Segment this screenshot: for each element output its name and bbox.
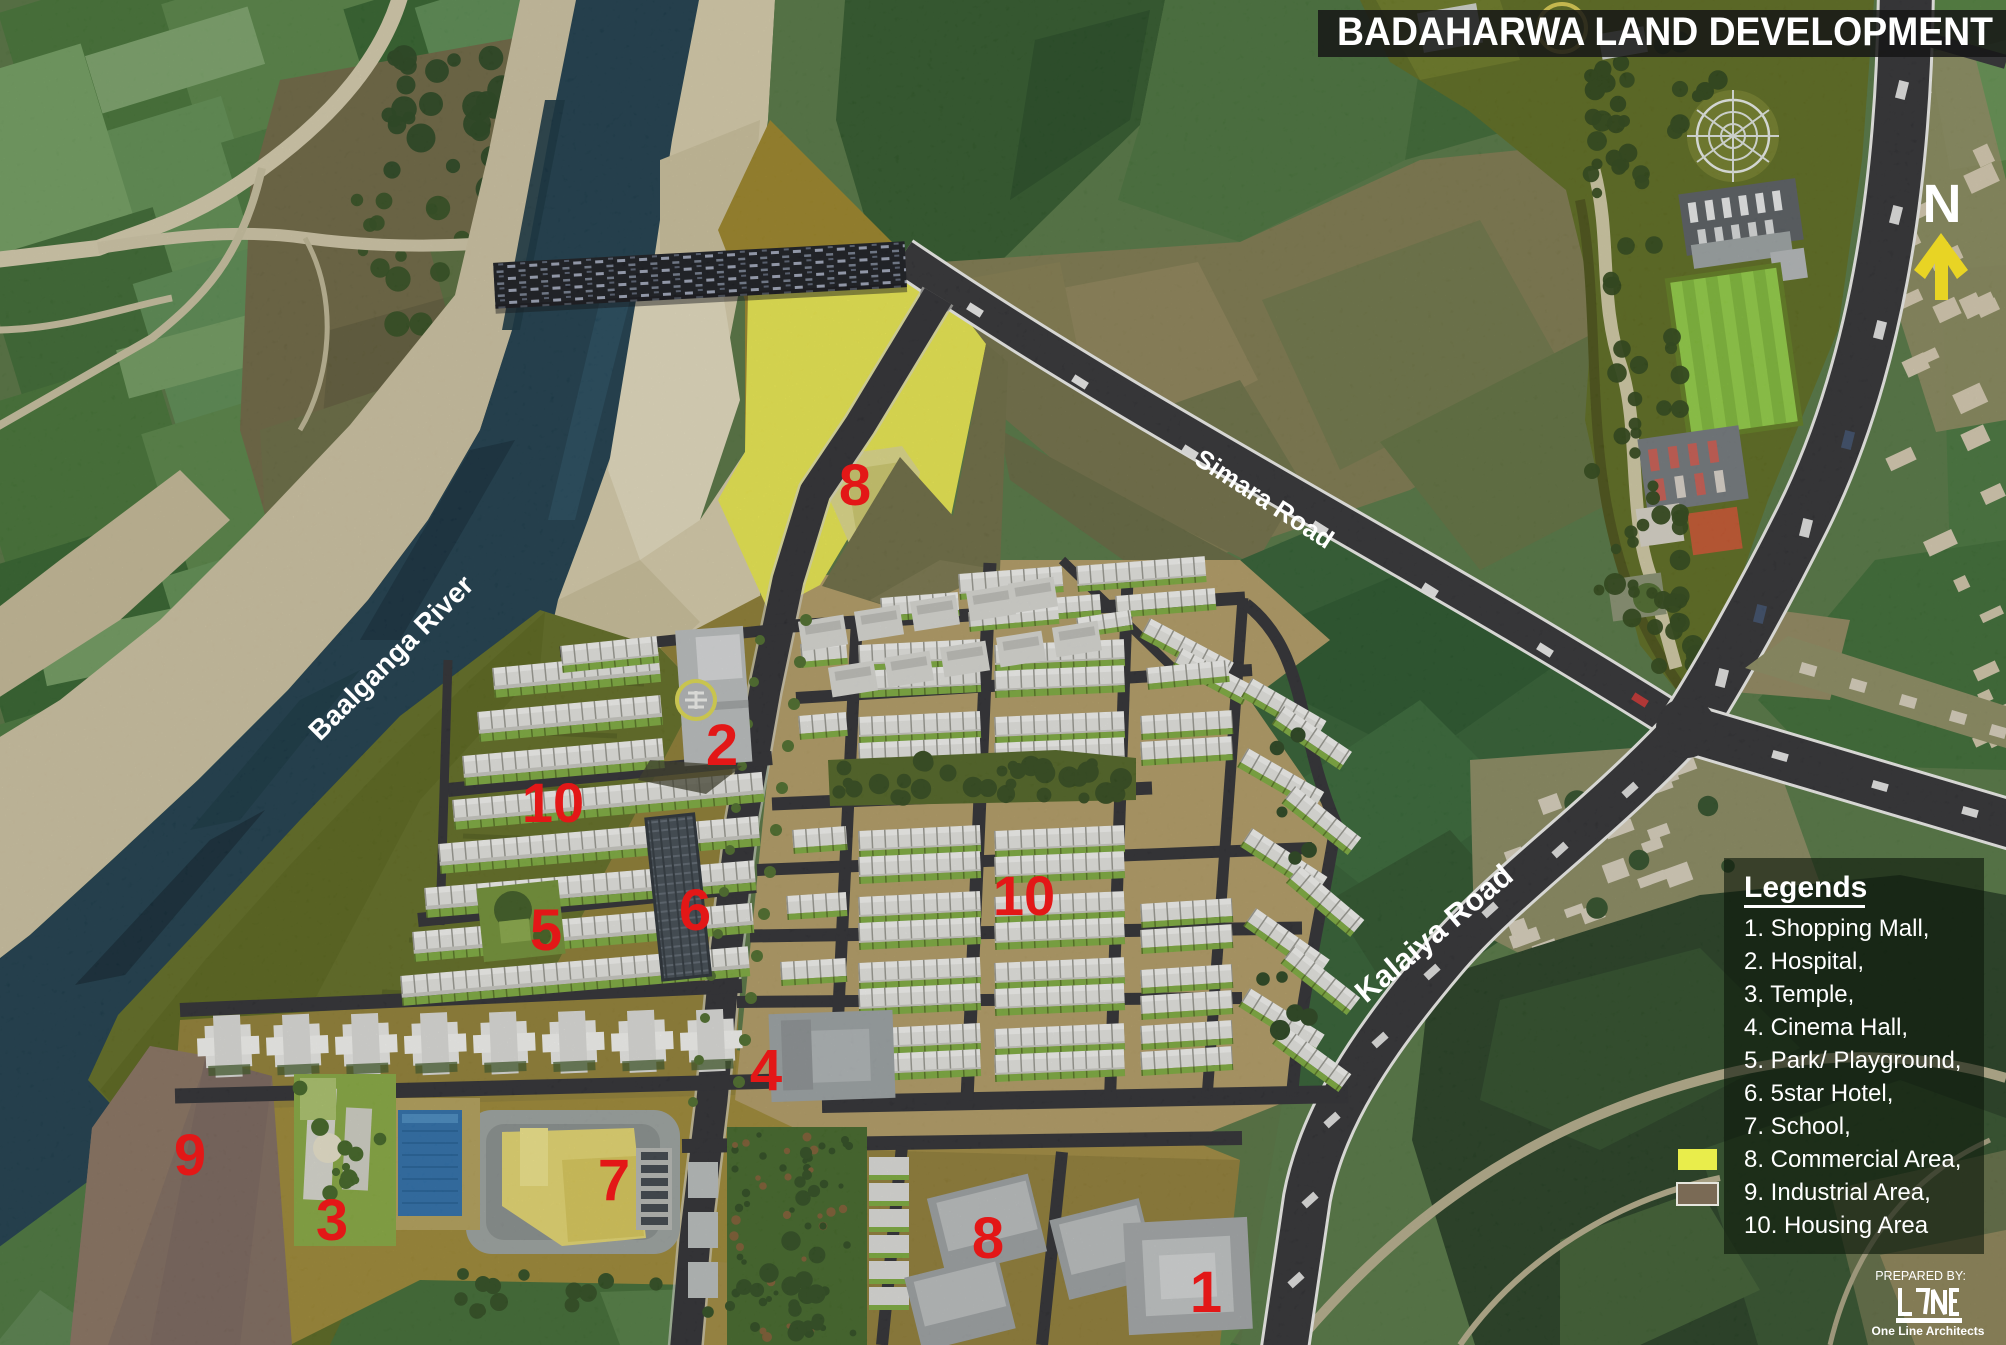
svg-text:10: 10: [522, 771, 584, 834]
svg-text:6. 5star Hotel,: 6. 5star Hotel,: [1744, 1080, 1893, 1107]
svg-text:One Line Architects: One Line Architects: [1872, 1324, 1985, 1338]
svg-text:10: 10: [993, 864, 1055, 927]
svg-text:7: 7: [598, 1148, 630, 1213]
svg-text:1: 1: [1190, 1260, 1222, 1325]
svg-text:3: 3: [316, 1188, 348, 1253]
svg-text:8: 8: [972, 1206, 1004, 1271]
svg-text:6: 6: [679, 878, 711, 943]
svg-text:9: 9: [174, 1123, 206, 1188]
svg-text:7. School,: 7. School,: [1744, 1113, 1851, 1140]
svg-text:2. Hospital,: 2. Hospital,: [1744, 948, 1864, 975]
svg-text:BADAHARWA LAND DEVELOPMENT: BADAHARWA LAND DEVELOPMENT: [1337, 10, 1993, 54]
svg-text:2: 2: [706, 713, 738, 778]
svg-text:Legends: Legends: [1744, 871, 1867, 904]
svg-text:8. Commercial Area,: 8. Commercial Area,: [1744, 1146, 1961, 1173]
svg-text:4. Cinema Hall,: 4. Cinema Hall,: [1744, 1014, 1908, 1041]
svg-text:5. Park/ Playground,: 5. Park/ Playground,: [1744, 1047, 1961, 1074]
svg-text:3. Temple,: 3. Temple,: [1744, 981, 1854, 1008]
svg-text:1. Shopping Mall,: 1. Shopping Mall,: [1744, 915, 1929, 942]
svg-text:5: 5: [530, 898, 562, 963]
svg-text:10. Housing Area: 10. Housing Area: [1744, 1212, 1929, 1239]
svg-text:9. Industrial Area,: 9. Industrial Area,: [1744, 1179, 1931, 1206]
svg-text:N: N: [1923, 174, 1962, 234]
svg-text:4: 4: [750, 1038, 782, 1103]
svg-text:8: 8: [839, 453, 871, 518]
svg-text:PREPARED BY:: PREPARED BY:: [1875, 1269, 1966, 1283]
